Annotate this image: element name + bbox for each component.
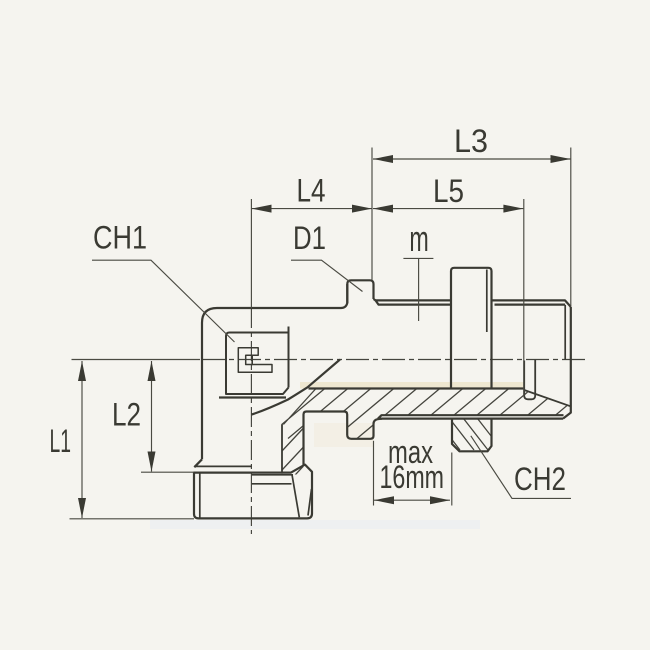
svg-text:CH2: CH2: [514, 461, 566, 497]
svg-text:CH1: CH1: [93, 219, 147, 255]
svg-text:D1: D1: [293, 220, 326, 256]
svg-text:L3: L3: [454, 123, 488, 159]
svg-text:L2: L2: [112, 397, 141, 433]
svg-text:16mm: 16mm: [380, 459, 445, 495]
svg-text:L1: L1: [50, 423, 72, 459]
svg-text:L4: L4: [297, 173, 326, 209]
svg-text:L5: L5: [433, 173, 464, 209]
svg-text:m: m: [409, 218, 428, 259]
